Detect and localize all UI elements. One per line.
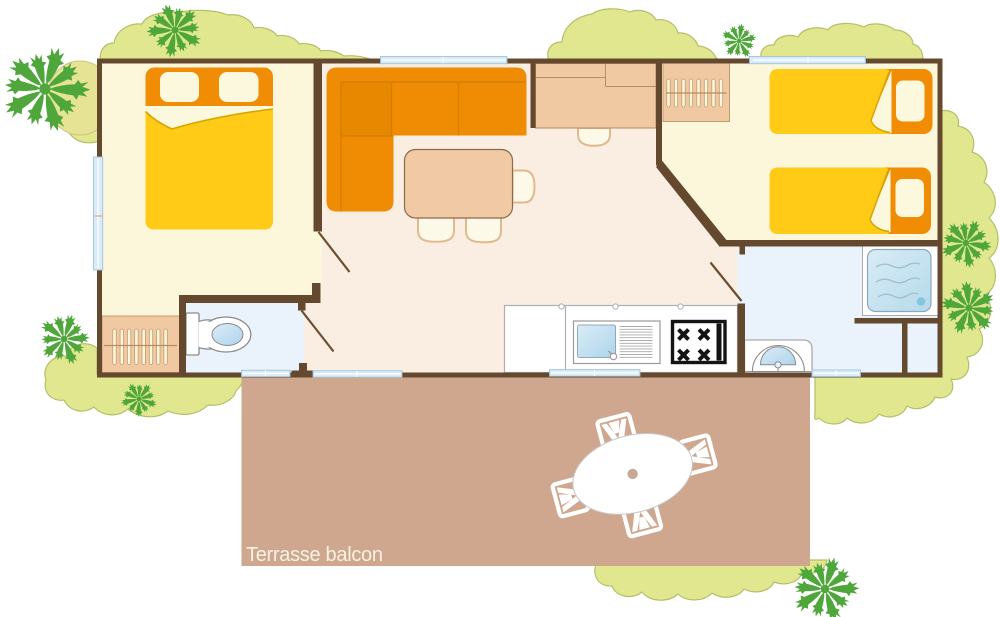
svg-text:Terrasse balcon: Terrasse balcon [246, 544, 383, 566]
